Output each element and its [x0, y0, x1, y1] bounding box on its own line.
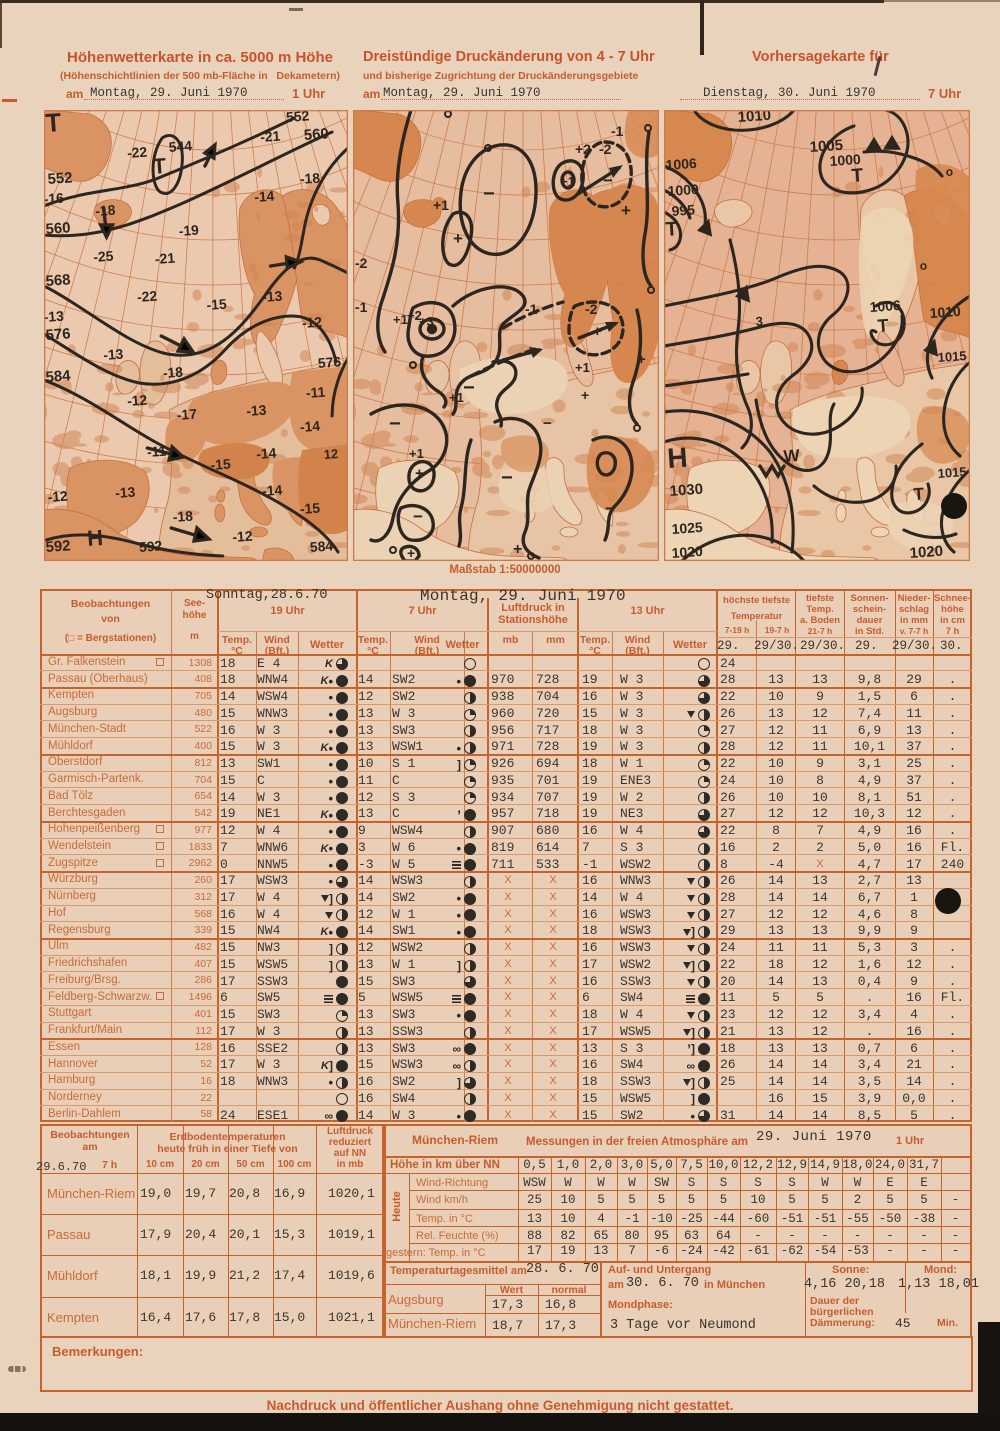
svg-text:3: 3: [755, 314, 763, 329]
svg-text:-11: -11: [305, 384, 326, 401]
svg-text:576: 576: [45, 325, 71, 344]
svg-text:-1: -1: [525, 301, 538, 317]
svg-text:-18: -18: [162, 364, 183, 381]
svg-text:T: T: [44, 110, 62, 138]
svg-text:1030: 1030: [669, 481, 703, 500]
svg-text:-14: -14: [256, 445, 277, 462]
svg-text:-13: -13: [44, 308, 64, 325]
svg-text:1000: 1000: [667, 181, 699, 199]
svg-text:-11: -11: [146, 443, 167, 460]
svg-text:+2: +2: [575, 141, 591, 157]
svg-text:o: o: [919, 259, 927, 273]
svg-text:1020: 1020: [909, 543, 943, 561]
svg-text:-12: -12: [47, 488, 68, 505]
svg-text:-22: -22: [136, 288, 157, 305]
svg-text:1010: 1010: [737, 110, 771, 126]
svg-text:+1: +1: [449, 390, 464, 405]
svg-text:-13: -13: [115, 484, 136, 501]
svg-text:1015: 1015: [937, 348, 967, 365]
svg-text:-18: -18: [299, 170, 320, 187]
svg-text:o: o: [945, 165, 953, 179]
svg-text:−: −: [605, 499, 615, 518]
svg-text:12: 12: [323, 446, 338, 462]
svg-text:+: +: [621, 201, 631, 220]
svg-text:-2: -2: [585, 301, 598, 317]
svg-text:-12: -12: [127, 392, 148, 409]
svg-text:1020: 1020: [671, 543, 703, 561]
svg-text:-2: -2: [355, 255, 368, 271]
svg-text:+1: +1: [409, 446, 424, 461]
svg-text:584: 584: [309, 537, 333, 555]
svg-text:−: −: [463, 377, 475, 399]
svg-text:-13: -13: [246, 402, 267, 419]
svg-text:-15: -15: [299, 500, 320, 517]
svg-text:H: H: [86, 525, 103, 551]
svg-text:-15: -15: [210, 456, 231, 473]
svg-text:584: 584: [45, 367, 72, 386]
svg-text:+: +: [593, 323, 602, 340]
svg-text:-12: -12: [301, 314, 322, 331]
svg-text:552: 552: [286, 110, 310, 125]
svg-text:T: T: [913, 484, 925, 504]
svg-text:-18: -18: [172, 508, 193, 525]
svg-text:−: −: [413, 507, 423, 526]
svg-text:-1: -1: [355, 299, 368, 315]
svg-text:-25: -25: [93, 248, 114, 265]
svg-text:H: H: [666, 442, 688, 474]
svg-text:552: 552: [47, 169, 73, 188]
svg-text:-17: -17: [176, 406, 197, 423]
svg-text:W: W: [783, 446, 801, 466]
svg-text:560: 560: [45, 219, 71, 238]
svg-text:-21: -21: [260, 128, 281, 145]
svg-text:-14: -14: [299, 418, 320, 435]
svg-text:-15: -15: [206, 296, 227, 313]
svg-text:1025: 1025: [671, 519, 703, 537]
svg-text:T: T: [152, 153, 168, 179]
svg-text:1006: 1006: [665, 155, 697, 173]
svg-text:-2: -2: [599, 141, 612, 157]
svg-text:-22: -22: [127, 144, 148, 161]
svg-text:+: +: [581, 387, 589, 403]
svg-text:−: −: [603, 171, 613, 190]
svg-text:T: T: [851, 165, 864, 187]
svg-text:+: +: [407, 545, 415, 561]
svg-text:+1: +1: [575, 360, 590, 375]
svg-text:-14: -14: [254, 188, 275, 205]
svg-text:-19: -19: [178, 222, 199, 239]
svg-text:+: +: [415, 465, 424, 482]
svg-text:+1: +1: [560, 174, 575, 189]
svg-text:592: 592: [138, 537, 162, 555]
svg-text:-18: -18: [95, 202, 116, 219]
svg-text:T: T: [877, 315, 889, 336]
svg-text:-21: -21: [154, 250, 175, 267]
svg-text:+3: +3: [419, 314, 434, 329]
svg-text:−: −: [501, 467, 513, 489]
svg-text:1010: 1010: [929, 303, 961, 321]
svg-text:+: +: [453, 229, 463, 248]
svg-text:+1: +1: [393, 312, 408, 327]
svg-text:576: 576: [317, 353, 341, 371]
svg-text:-1: -1: [611, 123, 624, 139]
svg-text:+: +: [513, 541, 522, 558]
svg-text:T: T: [665, 218, 679, 241]
svg-text:−: −: [483, 183, 495, 205]
svg-text:−: −: [389, 413, 401, 435]
svg-text:-16: -16: [44, 190, 64, 207]
svg-text:-13: -13: [103, 346, 124, 363]
svg-text:-13: -13: [262, 288, 283, 305]
svg-text:+: +: [637, 351, 646, 368]
svg-text:995: 995: [671, 201, 696, 219]
svg-text:592: 592: [45, 537, 71, 556]
svg-text:1006: 1006: [869, 297, 901, 315]
svg-text:−: −: [543, 415, 552, 432]
svg-text:+1: +1: [433, 197, 449, 213]
svg-text:-12: -12: [232, 528, 253, 545]
svg-text:568: 568: [45, 271, 71, 290]
svg-text:560: 560: [303, 125, 329, 144]
svg-text:1015: 1015: [937, 464, 967, 481]
svg-text:544: 544: [168, 137, 192, 155]
svg-text:-14: -14: [262, 482, 283, 499]
